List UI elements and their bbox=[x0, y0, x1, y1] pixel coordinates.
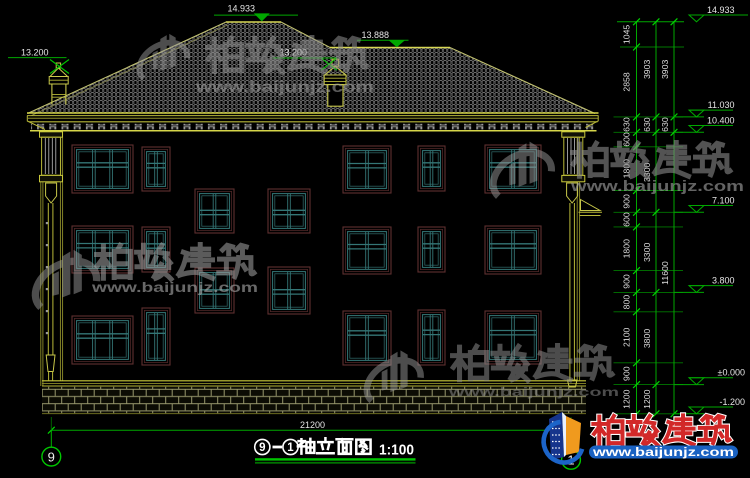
svg-text:1200: 1200 bbox=[642, 389, 652, 408]
svg-text:600: 600 bbox=[622, 212, 632, 227]
svg-text:630: 630 bbox=[622, 117, 632, 132]
svg-text:13.888: 13.888 bbox=[362, 30, 390, 40]
svg-text:11.030: 11.030 bbox=[708, 100, 735, 110]
svg-text:1: 1 bbox=[287, 442, 294, 454]
svg-text:3903: 3903 bbox=[660, 60, 670, 79]
svg-text:±0.000: ±0.000 bbox=[718, 368, 745, 378]
svg-text:900: 900 bbox=[622, 194, 632, 209]
svg-text:www.baijunjz.com: www.baijunjz.com bbox=[570, 179, 744, 195]
svg-text:3300: 3300 bbox=[642, 243, 652, 262]
svg-text:3800: 3800 bbox=[642, 329, 652, 348]
svg-text:3903: 3903 bbox=[642, 60, 652, 79]
svg-text:1:100: 1:100 bbox=[379, 442, 414, 459]
svg-text:10.400: 10.400 bbox=[707, 115, 735, 125]
svg-text:900: 900 bbox=[622, 274, 632, 289]
svg-text:www.baijunjz.com: www.baijunjz.com bbox=[592, 447, 734, 459]
svg-text:-1.200: -1.200 bbox=[719, 397, 745, 407]
svg-text:9: 9 bbox=[48, 449, 55, 464]
svg-text:www.baijunjz.com: www.baijunjz.com bbox=[195, 79, 374, 96]
svg-text:14.933: 14.933 bbox=[707, 5, 735, 15]
svg-text:www.baijunjz.com: www.baijunjz.com bbox=[447, 387, 619, 399]
svg-text:630: 630 bbox=[660, 117, 670, 132]
svg-text:630: 630 bbox=[642, 117, 652, 132]
svg-text:14.933: 14.933 bbox=[228, 4, 256, 14]
svg-text:www.baijunjz.com: www.baijunjz.com bbox=[91, 279, 258, 295]
svg-text:900: 900 bbox=[622, 366, 632, 381]
svg-text:2858: 2858 bbox=[622, 72, 632, 91]
svg-text:11600: 11600 bbox=[660, 261, 670, 285]
svg-text:9: 9 bbox=[259, 442, 265, 454]
svg-text:21200: 21200 bbox=[300, 420, 325, 430]
svg-text:7.100: 7.100 bbox=[712, 195, 735, 205]
svg-text:800: 800 bbox=[622, 295, 632, 310]
svg-text:2100: 2100 bbox=[622, 327, 632, 346]
svg-text:13.200: 13.200 bbox=[21, 48, 49, 58]
svg-text:1800: 1800 bbox=[622, 239, 632, 258]
svg-text:1200: 1200 bbox=[622, 389, 632, 408]
svg-text:3.800: 3.800 bbox=[712, 275, 735, 285]
svg-text:600: 600 bbox=[622, 132, 632, 147]
svg-text:1045: 1045 bbox=[622, 25, 632, 44]
